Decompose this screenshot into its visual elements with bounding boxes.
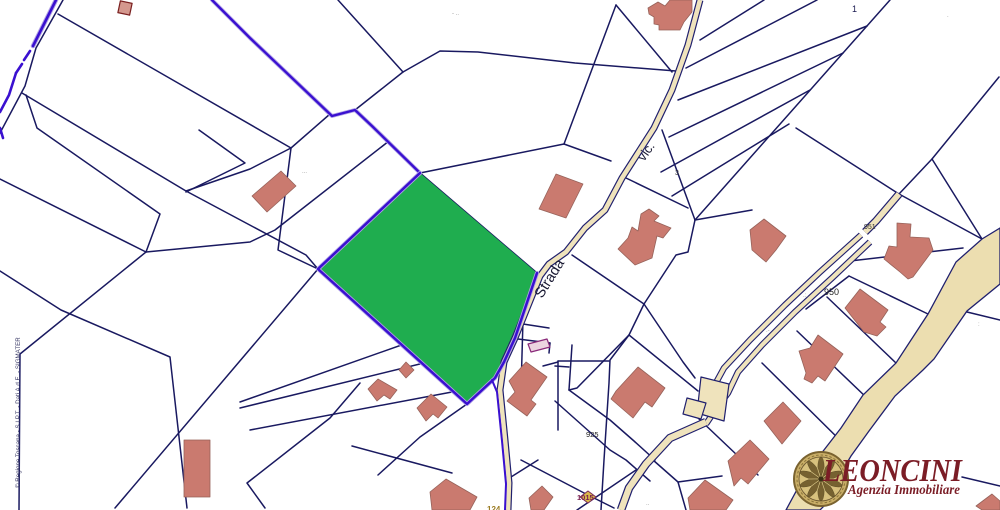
svg-text:© Regione Toscana - S.I.P.T. -: © Regione Toscana - S.I.P.T. - Dati A.d.… bbox=[15, 337, 22, 488]
svg-text:..: .. bbox=[646, 501, 650, 507]
svg-text:1015: 1015 bbox=[577, 493, 594, 502]
svg-text:.:.: .:. bbox=[803, 293, 808, 299]
svg-text:- ..: - .. bbox=[452, 11, 459, 17]
svg-text:3: 3 bbox=[675, 170, 679, 177]
svg-text:124: 124 bbox=[487, 505, 501, 510]
svg-text:951: 951 bbox=[864, 224, 876, 231]
svg-text:...: ... bbox=[302, 169, 307, 175]
svg-text:.-: .- bbox=[766, 328, 770, 334]
svg-text:925: 925 bbox=[586, 430, 599, 439]
svg-text:1: 1 bbox=[852, 4, 857, 14]
svg-text:Agenzia Immobiliare: Agenzia Immobiliare bbox=[847, 483, 960, 498]
svg-text:950: 950 bbox=[824, 287, 839, 297]
